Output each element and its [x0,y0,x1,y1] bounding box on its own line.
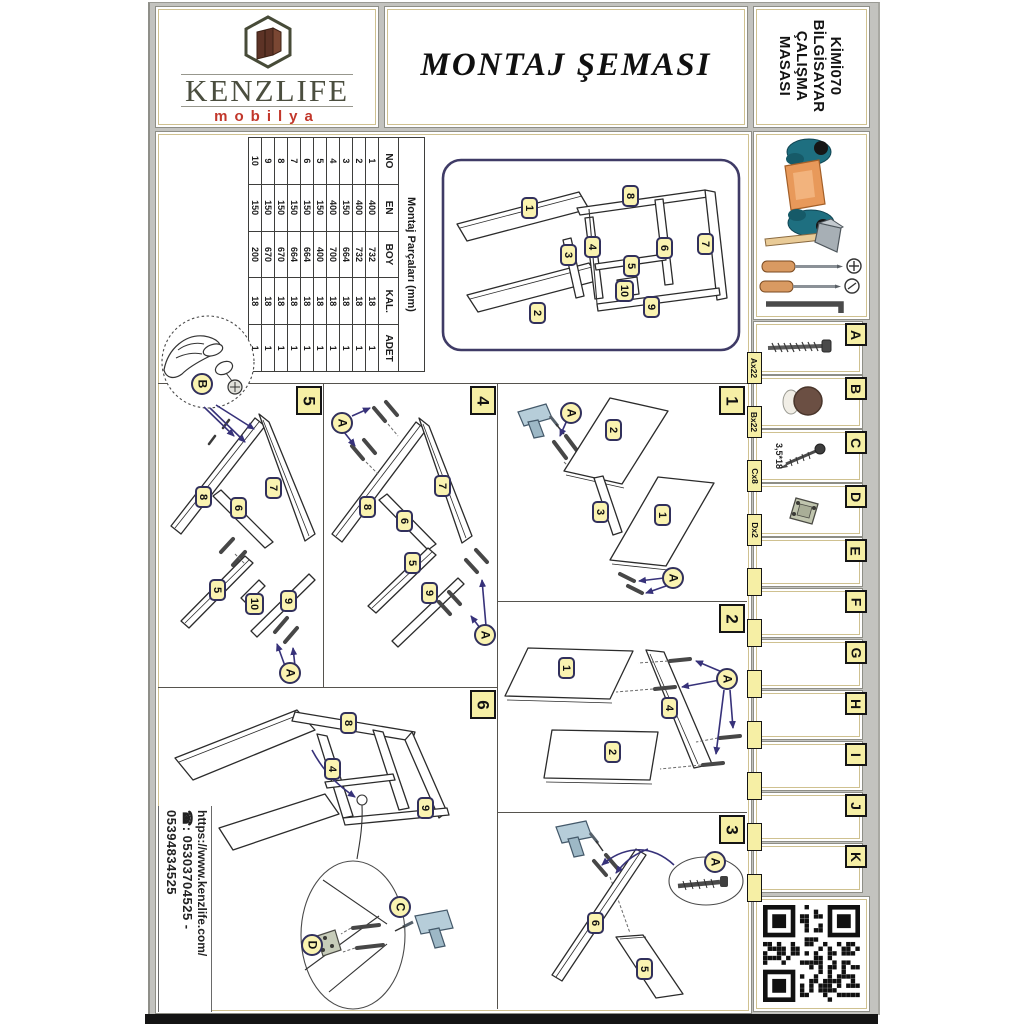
drill-icon [518,404,564,438]
part-label: 8 [359,496,376,518]
hardware-letter-c: C [845,431,867,454]
step-tab-2: 2 [719,604,745,633]
scanned-assembly-sheet: { "brand": {"name": "KENZLIFE", "sub": "… [0,0,1024,1024]
table-row: 8150670181 [275,138,288,372]
website-url: https://www.kenzlife.com/ [195,810,209,1008]
fastener-label-a: A [704,851,726,873]
part-label: 1 [521,197,538,219]
hardware-letter-k: K [845,845,867,868]
fastener-label-a: A [279,662,301,684]
table-row: 5150400181 [314,138,327,372]
part-label: 6 [587,912,604,934]
part-label: 8 [622,185,639,207]
drill-icon [556,821,603,857]
panel-divider [158,687,498,688]
screwdriver-flat-icon [760,279,859,293]
hardware-count-c: Cx8 [747,460,762,492]
part-label: 9 [280,590,297,612]
step-2-diagram [498,602,748,812]
fastener-label-a: A [662,567,684,589]
contact-block: https://www.kenzlife.com/ ☎: 05303704525… [158,806,212,1012]
scan-bottom-bar [145,1014,878,1024]
fastener-label-c: C [389,896,411,918]
part-label: 8 [195,486,212,508]
table-row: 9150670181 [262,138,275,372]
confirmat-screw-icon [758,326,854,370]
part-label: 7 [697,233,714,255]
phone-numbers: ☎: 05303704525 - 05394834525 [164,810,195,1008]
cover-cap-icon [758,380,854,424]
part-label: 4 [584,236,601,258]
part-label: 6 [656,237,673,259]
panel-divider [497,383,498,1009]
hardware-count-blank-f [747,619,762,647]
step-3-diagram [498,813,748,1010]
fastener-label-a: A [331,412,353,434]
part-label: 1 [654,504,671,526]
step-tab-1: 1 [719,386,745,415]
qr-code [763,905,860,1002]
step-tab-4: 4 [470,386,496,415]
hardware-letter-d: D [845,485,867,508]
hardware-count-b: Bx22 [747,406,762,438]
table-row: 2400732181 [353,138,366,372]
table-row: 4400700181 [327,138,340,372]
table-row: 1400732181 [366,138,379,372]
hardware-count-blank-i [747,772,762,800]
parts-table-title: Montaj Parçaları (mm) [399,138,425,372]
logo-rule-bottom [181,106,353,107]
hardware-letter-b: B [845,377,867,400]
part-label: 2 [529,302,546,324]
fastener-label-a: A [560,402,582,424]
step-tab-5: 5 [296,386,322,415]
part-label: 5 [636,958,653,980]
hardware-count-blank-h [747,721,762,749]
workers-and-tools-illustration [757,135,866,316]
part-label: 5 [209,579,226,601]
part-label: 6 [230,497,247,519]
brand-subtitle: mobilya [156,108,378,125]
fastener-label-a: A [474,624,496,646]
step-tab-6: 6 [470,690,496,719]
step-1-diagram [498,384,748,601]
part-label: 2 [604,741,621,763]
tools-box [753,131,870,320]
title-box: MONTAJ ŞEMASI [384,6,748,128]
logo-box: KENZLIFE mobilya [155,6,379,128]
table-row: 7150664181 [288,138,301,372]
hardware-count-a: Ax22 [747,352,762,384]
parts-table: Montaj Parçaları (mm) NO EN BOY KAL. ADE… [248,137,425,372]
part-label: 10 [245,593,264,615]
panel-divider [323,383,324,687]
bracket-icon [758,488,854,532]
hardware-letter-h: H [845,692,867,715]
part-label: 9 [421,582,438,604]
hardware-letter-e: E [845,539,867,562]
table-row: 10150200181 [249,138,262,372]
part-label: 7 [265,477,282,499]
hardware-count-blank-j [747,823,762,851]
hardware-letter-f: F [845,590,867,613]
hardware-letter-j: J [845,794,867,817]
hardware-letter-a: A [845,323,867,346]
fastener-label-d: D [301,934,323,956]
screwdriver-phillips-icon [762,259,861,273]
part-label: 4 [661,697,678,719]
brand-name: KENZLIFE [156,73,378,109]
part-label: 5 [404,552,421,574]
part-label: 9 [417,797,434,819]
part-label: 8 [340,712,357,734]
table-row: 3150664181 [340,138,353,372]
part-label: 7 [434,475,451,497]
part-label: 3 [592,501,609,523]
part-label: 6 [396,510,413,532]
hardware-count-d: Dx2 [747,514,762,546]
fastener-label-b: B [191,373,213,395]
allen-key-icon [766,304,841,313]
hardware-count-blank-e [747,568,762,596]
step-tab-3: 3 [719,815,745,844]
qr-box [753,896,870,1012]
panel-divider [497,812,747,813]
hardware-letter-i: I [845,743,867,766]
product-name-box: KİMİ070 BİLGİSAYAR ÇALIŞMA MASASI [753,6,870,128]
screw-size-note: 3,5*18 [772,434,786,478]
kenzlife-hexagon-logo-icon [242,15,294,69]
phone-icon: ☎ [180,810,195,827]
fastener-label-a: A [716,668,738,690]
product-name: KİMİ070 BİLGİSAYAR ÇALIŞMA MASASI [777,20,845,113]
part-label: 9 [643,296,660,318]
parts-table-rotated: Montaj Parçaları (mm) NO EN BOY KAL. ADE… [258,137,425,372]
hardware-count-blank-k [747,874,762,902]
part-label: 10 [615,280,634,302]
panel-divider [158,383,747,384]
part-label: 1 [558,657,575,679]
panel-divider [497,601,747,602]
part-label: 3 [560,244,577,266]
table-row: 6150664181 [301,138,314,372]
hardware-count-blank-g [747,670,762,698]
page-title: MONTAJ ŞEMASI [385,47,747,84]
part-label: 2 [605,419,622,441]
hardware-letter-g: G [845,641,867,664]
step-5-diagram [157,384,323,687]
part-label: 4 [324,758,341,780]
part-label: 5 [623,255,640,277]
